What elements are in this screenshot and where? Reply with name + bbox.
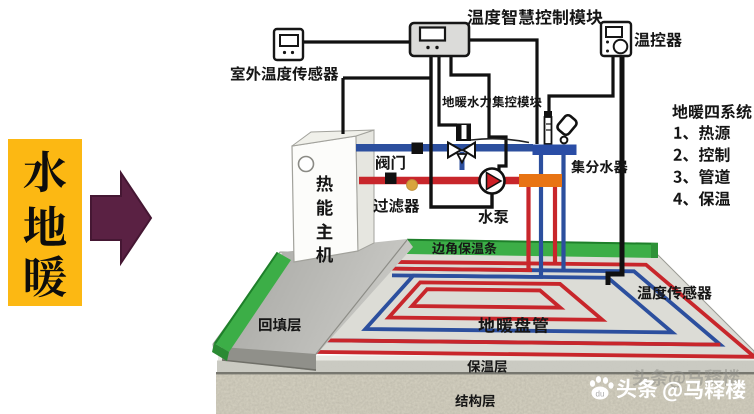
svg-text:du: du xyxy=(596,390,605,399)
